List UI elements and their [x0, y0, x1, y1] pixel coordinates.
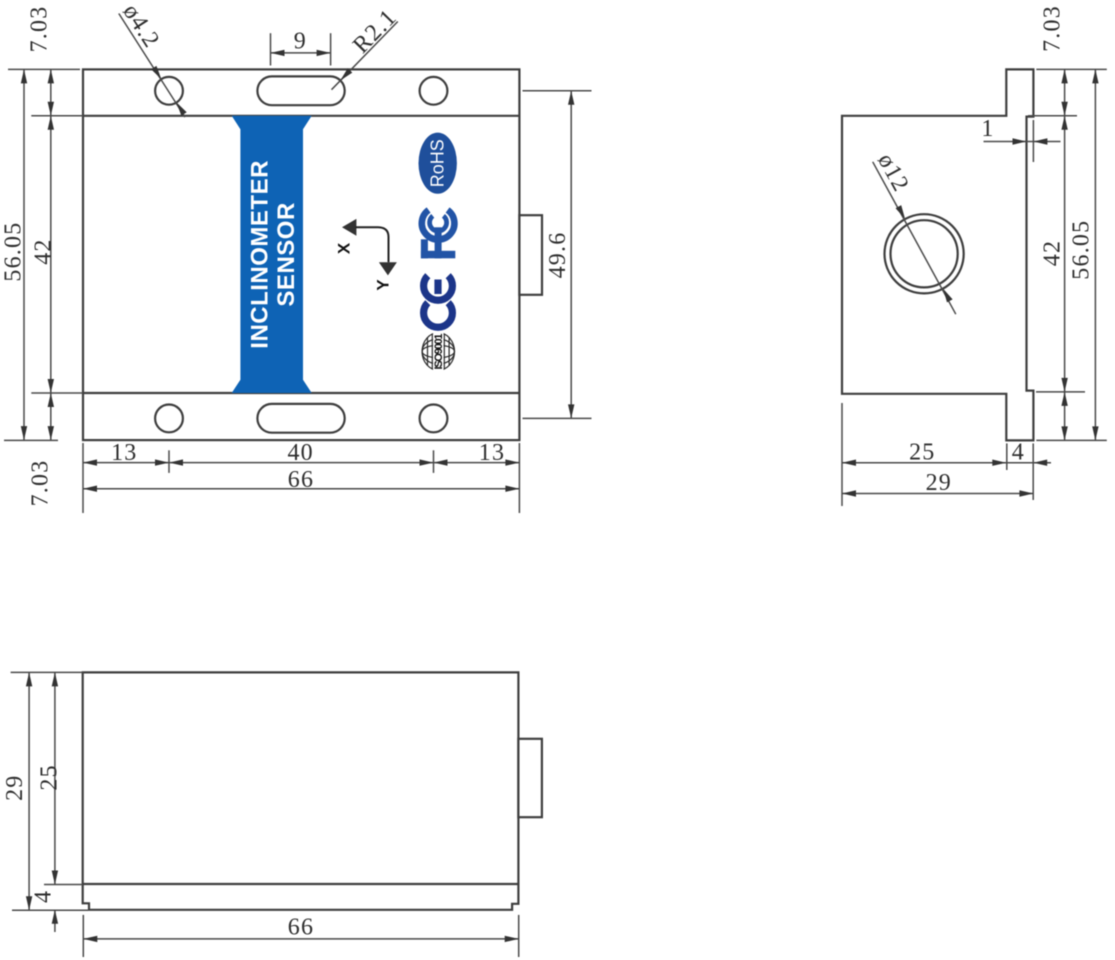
svg-text:25: 25 [909, 440, 935, 466]
svg-text:66: 66 [288, 467, 314, 493]
svg-text:ø4.2: ø4.2 [117, 0, 164, 53]
svg-text:4: 4 [1012, 440, 1025, 466]
svg-text:INCLINOMETER: INCLINOMETER [247, 160, 274, 349]
svg-text:66: 66 [288, 915, 314, 941]
svg-text:25: 25 [36, 764, 62, 790]
svg-text:4: 4 [31, 890, 57, 903]
svg-text:ø12: ø12 [872, 149, 914, 196]
svg-text:13: 13 [479, 440, 505, 466]
svg-text:ISO9001: ISO9001 [433, 334, 445, 370]
svg-text:SENSOR: SENSOR [273, 202, 300, 306]
svg-text:RoHS: RoHS [428, 139, 448, 187]
svg-text:X: X [335, 242, 354, 254]
svg-text:7.03: 7.03 [1040, 5, 1066, 52]
svg-text:56.05: 56.05 [1, 222, 27, 282]
svg-text:7.03: 7.03 [28, 460, 54, 507]
svg-text:56.05: 56.05 [1069, 220, 1095, 280]
svg-text:9: 9 [294, 29, 307, 55]
svg-text:40: 40 [287, 440, 313, 466]
svg-text:7.03: 7.03 [27, 6, 53, 53]
svg-text:13: 13 [111, 440, 137, 466]
svg-text:Y: Y [374, 279, 393, 291]
svg-text:R2.1: R2.1 [348, 4, 402, 59]
svg-text:29: 29 [2, 774, 28, 800]
svg-text:42: 42 [1040, 240, 1066, 266]
svg-text:1: 1 [981, 116, 994, 142]
svg-text:49.6: 49.6 [545, 232, 571, 279]
svg-text:29: 29 [926, 470, 952, 496]
svg-text:42: 42 [31, 238, 57, 264]
